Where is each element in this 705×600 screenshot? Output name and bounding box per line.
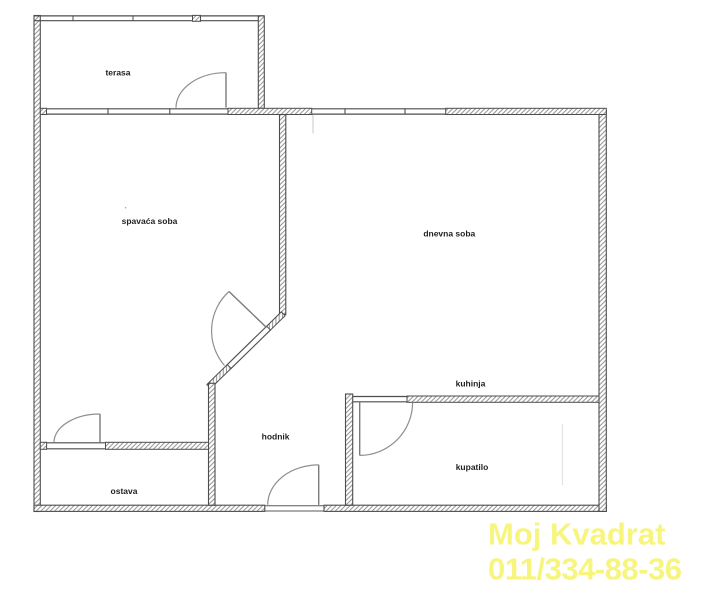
svg-text:dnevna soba: dnevna soba	[423, 228, 475, 238]
svg-text:kuhinja: kuhinja	[456, 379, 486, 389]
svg-text:ostava: ostava	[111, 486, 138, 496]
svg-text:kupatilo: kupatilo	[456, 462, 489, 472]
svg-text:spavaća soba: spavaća soba	[122, 216, 178, 226]
svg-text:terasa: terasa	[105, 68, 130, 78]
svg-text:hodnik: hodnik	[262, 432, 290, 442]
svg-text:011/334-88-36: 011/334-88-36	[488, 551, 682, 586]
svg-text:Moj Kvadrat: Moj Kvadrat	[488, 516, 665, 551]
